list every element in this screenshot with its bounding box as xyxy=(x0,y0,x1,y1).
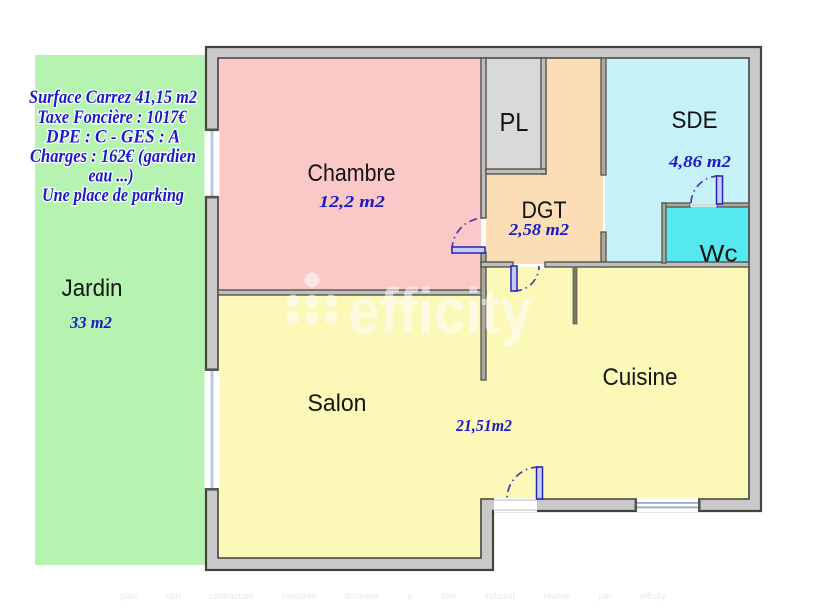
svg-text:Taxe Foncière : 1017€: Taxe Foncière : 1017€ xyxy=(38,108,188,128)
svg-text:PL: PL xyxy=(500,107,529,137)
svg-text:33 m2: 33 m2 xyxy=(69,313,112,332)
svg-text:eau ...): eau ...) xyxy=(89,167,134,187)
svg-text:Salon: Salon xyxy=(308,390,367,417)
svg-text:efficity: efficity xyxy=(348,275,532,347)
svg-text:Surface Carrez 41,15 m2: Surface Carrez 41,15 m2 xyxy=(29,88,197,108)
svg-text:12,2 m2: 12,2 m2 xyxy=(319,192,386,211)
svg-text:Une place de parking: Une place de parking xyxy=(42,186,184,206)
svg-text:Wc: Wc xyxy=(700,241,738,268)
svg-text:plan non contractuel mesures d: plan non contractuel mesures donnees a t… xyxy=(120,591,666,601)
svg-text:Jardin: Jardin xyxy=(62,275,123,302)
svg-text:21,51m2: 21,51m2 xyxy=(455,416,512,435)
svg-text:4,86 m2: 4,86 m2 xyxy=(668,152,732,171)
svg-text:DPE : C - GES : A: DPE : C - GES : A xyxy=(45,128,180,148)
svg-text:SDE: SDE xyxy=(672,107,718,134)
svg-text:2,58 m2: 2,58 m2 xyxy=(508,220,570,239)
svg-text:Cuisine: Cuisine xyxy=(603,364,678,391)
svg-text:Chambre: Chambre xyxy=(308,160,396,187)
svg-text:Charges : 162€ (gardien: Charges : 162€ (gardien xyxy=(30,147,196,167)
